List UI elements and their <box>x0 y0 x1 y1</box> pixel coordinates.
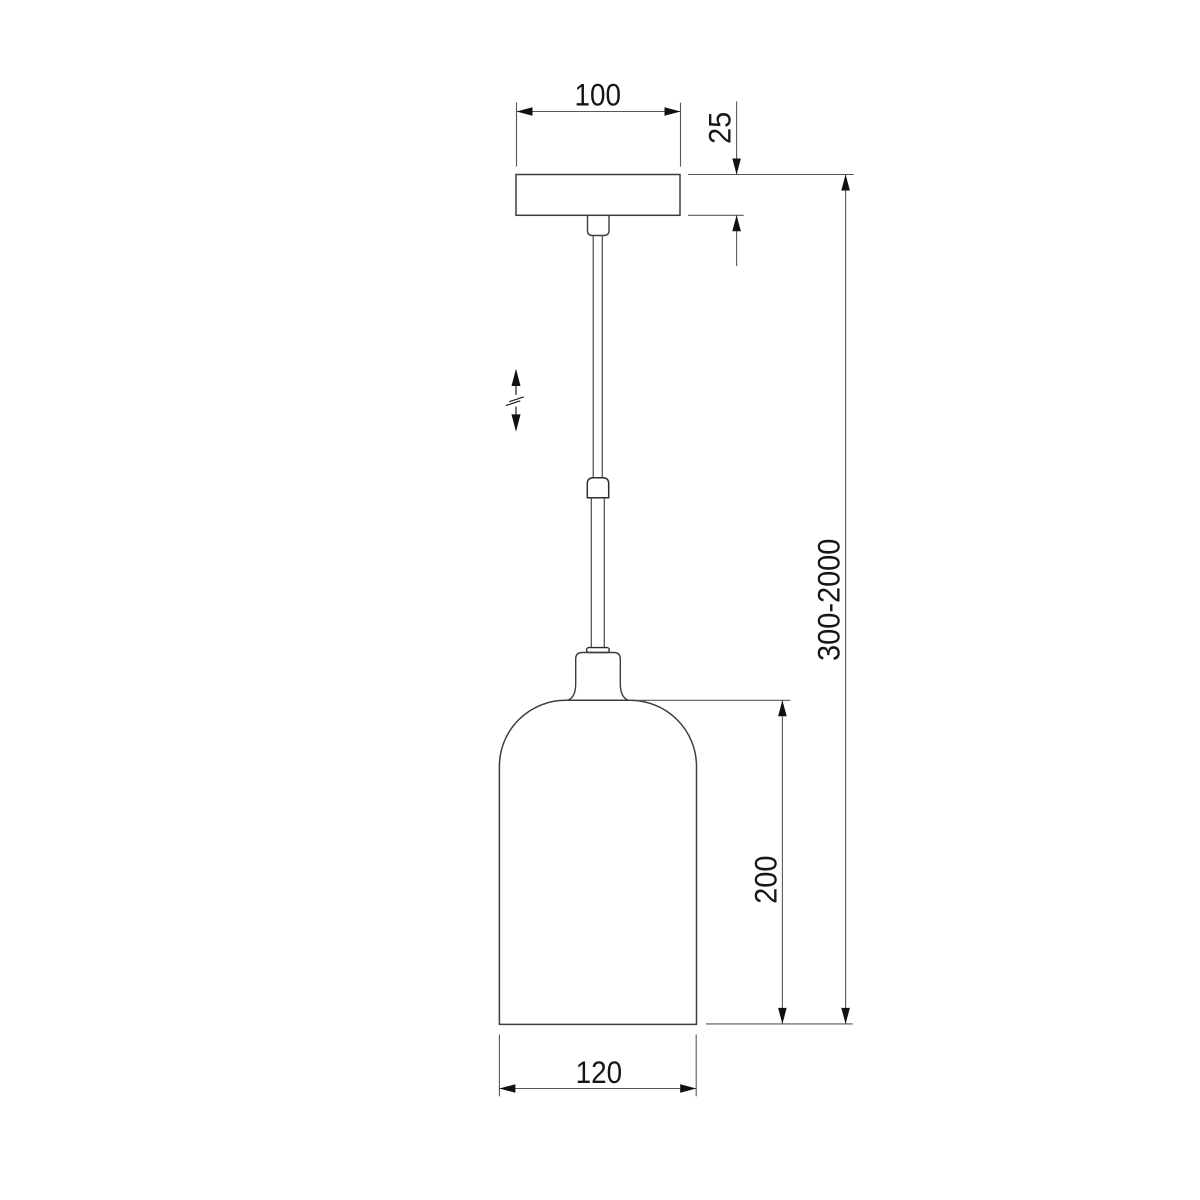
svg-text:25: 25 <box>703 112 737 144</box>
svg-text:100: 100 <box>575 78 622 113</box>
svg-text:120: 120 <box>576 1055 623 1090</box>
svg-text:200: 200 <box>749 856 783 904</box>
svg-text:300-2000: 300-2000 <box>812 539 846 661</box>
